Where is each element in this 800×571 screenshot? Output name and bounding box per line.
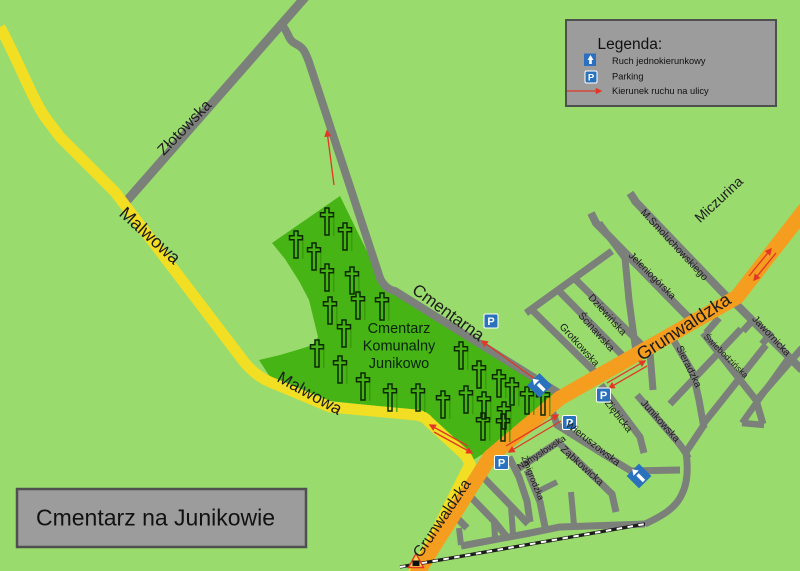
svg-text:Kierunek ruchu na ulicy: Kierunek ruchu na ulicy: [612, 86, 709, 96]
svg-text:Cmentarz na Junikowie: Cmentarz na Junikowie: [36, 505, 275, 531]
svg-text:Komunalny: Komunalny: [363, 339, 436, 355]
svg-text:Ruch jednokierunkowy: Ruch jednokierunkowy: [612, 56, 706, 66]
svg-text:Junikowo: Junikowo: [369, 356, 429, 372]
svg-text:Legenda:: Legenda:: [598, 36, 663, 53]
svg-text:P: P: [600, 390, 607, 402]
svg-text:Cmentarz: Cmentarz: [368, 321, 431, 337]
svg-text:P: P: [498, 458, 505, 470]
svg-text:Parking: Parking: [612, 72, 644, 82]
svg-text:P: P: [487, 316, 494, 328]
svg-text:P: P: [588, 73, 595, 84]
